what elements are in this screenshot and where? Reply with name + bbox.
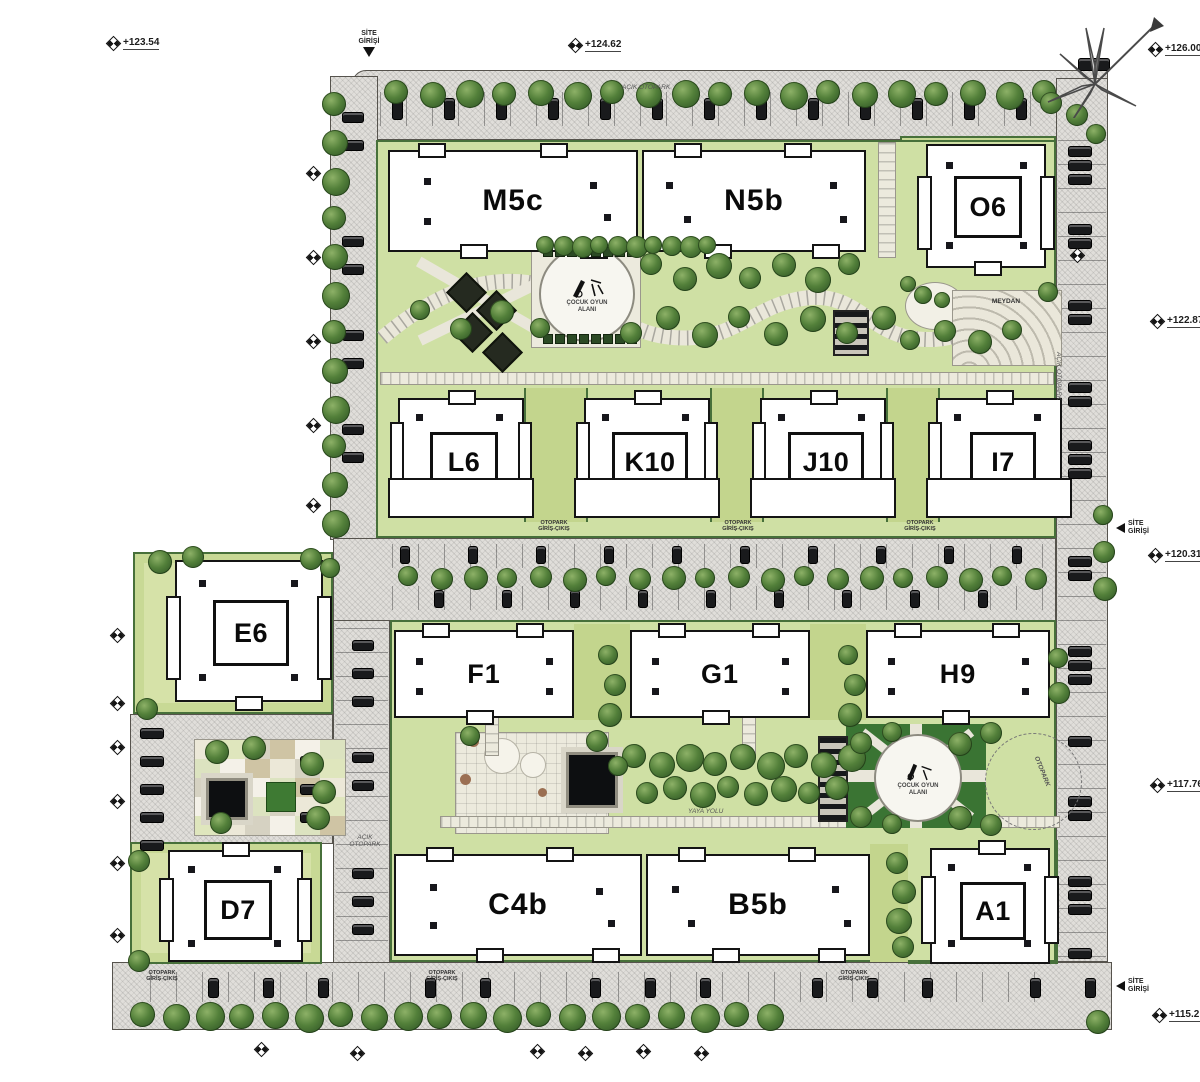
parking-gate-label: OTOPARK GİRİŞ-ÇIKIŞ xyxy=(716,520,760,533)
benchmark-icon xyxy=(306,418,322,434)
tree-icon xyxy=(850,732,872,754)
tree-icon xyxy=(322,396,350,424)
tree-icon xyxy=(625,1004,650,1029)
plaza-circle xyxy=(520,752,546,778)
plaza-dot xyxy=(538,788,547,797)
tree-icon xyxy=(838,645,858,665)
garden-square xyxy=(266,782,296,812)
building-K10-base xyxy=(574,478,720,518)
entrance-arrow-icon xyxy=(1116,981,1125,991)
car-icon xyxy=(1068,454,1092,465)
car-icon xyxy=(352,924,374,935)
tree-icon xyxy=(322,472,348,498)
building-core: O6 xyxy=(954,176,1022,238)
north-arrow-icon xyxy=(1040,6,1170,118)
elevation-marker: +115.21 xyxy=(1154,1010,1200,1022)
tree-icon xyxy=(306,806,330,830)
tree-icon xyxy=(460,1002,487,1029)
tree-icon xyxy=(980,814,1002,836)
tree-icon xyxy=(708,82,732,106)
elevation-marker: +123.54 xyxy=(108,38,159,50)
benchmark-icon xyxy=(106,36,122,52)
tree-icon xyxy=(852,82,878,108)
benchmark-icon xyxy=(110,628,126,644)
building-core: D7 xyxy=(204,880,272,940)
tree-icon xyxy=(882,814,902,834)
car-icon xyxy=(1030,978,1041,998)
tree-icon xyxy=(959,568,983,592)
tree-icon xyxy=(764,322,788,346)
entrance-arrow-icon xyxy=(1116,523,1125,533)
open-parking-label: AÇIK OTOPARK xyxy=(348,834,382,848)
car-icon xyxy=(808,98,819,120)
tree-icon xyxy=(691,1004,720,1033)
tree-icon xyxy=(1025,568,1047,590)
tree-icon xyxy=(728,306,750,328)
tree-icon xyxy=(690,782,716,808)
tree-icon xyxy=(934,320,956,342)
tree-icon xyxy=(493,1004,522,1033)
playground-equipment-icon xyxy=(567,274,607,300)
tree-icon xyxy=(182,546,204,568)
tree-icon xyxy=(914,286,932,304)
building-core: E6 xyxy=(213,600,289,666)
tree-icon xyxy=(205,740,229,764)
tree-icon xyxy=(460,726,480,746)
site-entrance-right: SİTE GİRİŞİ xyxy=(1116,520,1156,535)
car-icon xyxy=(536,546,546,564)
planter-icon xyxy=(555,334,565,344)
tree-icon xyxy=(427,1004,452,1029)
tree-icon xyxy=(322,320,346,344)
tree-icon xyxy=(771,776,797,802)
building-label: B5b xyxy=(648,856,868,954)
open-parking-label: AÇIK OTOPARK xyxy=(622,84,670,91)
car-icon xyxy=(208,978,219,998)
tree-icon xyxy=(528,80,554,106)
tree-icon xyxy=(640,253,662,275)
tree-icon xyxy=(836,322,858,344)
car-icon xyxy=(318,978,329,998)
tree-icon xyxy=(980,722,1002,744)
car-icon xyxy=(1068,948,1092,959)
car-icon xyxy=(706,590,716,608)
tree-icon xyxy=(816,80,840,104)
tree-icon xyxy=(210,812,232,834)
tree-icon xyxy=(328,1002,353,1027)
car-icon xyxy=(1068,556,1092,567)
tree-icon xyxy=(784,744,808,768)
building-B5b[interactable]: B5b xyxy=(646,854,870,956)
otopark-circle xyxy=(985,733,1082,830)
benchmark-icon xyxy=(1150,778,1166,794)
tree-icon xyxy=(312,780,336,804)
site-entrance-top: SİTE GİRİŞİ xyxy=(350,30,388,57)
tree-icon xyxy=(300,548,322,570)
tree-icon xyxy=(744,80,770,106)
benchmark-icon xyxy=(110,856,126,872)
tree-icon xyxy=(420,82,446,108)
tree-icon xyxy=(800,306,826,332)
tree-icon xyxy=(242,736,266,760)
building-C4b[interactable]: C4b xyxy=(394,854,642,956)
car-icon xyxy=(352,868,374,879)
building-label: H9 xyxy=(868,632,1048,716)
car-icon xyxy=(502,590,512,608)
tree-icon xyxy=(530,566,552,588)
tree-icon xyxy=(130,1002,155,1027)
tree-icon xyxy=(394,1002,423,1031)
car-icon xyxy=(1068,238,1092,249)
tree-icon xyxy=(992,566,1012,586)
benchmark-icon xyxy=(110,794,126,810)
planter-icon xyxy=(567,334,577,344)
tree-icon xyxy=(398,566,418,586)
benchmark-icon xyxy=(306,498,322,514)
entrance-label: SİTE GİRİŞİ xyxy=(1128,978,1156,993)
tree-icon xyxy=(559,1004,586,1031)
tree-icon xyxy=(673,267,697,291)
tree-icon xyxy=(672,80,700,108)
building-D7[interactable]: D7 xyxy=(168,850,303,962)
tree-icon xyxy=(1086,124,1106,144)
tree-icon xyxy=(698,236,716,254)
car-icon xyxy=(342,112,364,123)
benchmark-icon xyxy=(110,740,126,756)
tree-icon xyxy=(450,318,472,340)
tree-icon xyxy=(860,566,884,590)
tree-icon xyxy=(608,236,628,256)
tree-icon xyxy=(586,730,608,752)
car-icon xyxy=(812,978,823,998)
entrance-label: SİTE GİRİŞİ xyxy=(350,30,388,45)
tree-icon xyxy=(608,756,628,776)
playground-equipment-icon xyxy=(900,759,936,783)
car-icon xyxy=(740,546,750,564)
car-icon xyxy=(774,590,784,608)
elevation-marker: +120.31 xyxy=(1150,550,1200,562)
car-icon xyxy=(604,546,614,564)
parking-gate-label: OTOPARK GİRİŞ-ÇIKIŞ xyxy=(140,970,184,983)
car-icon xyxy=(352,752,374,763)
tree-icon xyxy=(996,82,1024,110)
car-icon xyxy=(352,696,374,707)
tree-icon xyxy=(526,1002,551,1027)
tree-icon xyxy=(772,253,796,277)
car-icon xyxy=(590,978,601,998)
car-icon xyxy=(352,896,374,907)
tree-icon xyxy=(882,722,902,742)
car-icon xyxy=(1068,396,1092,407)
car-icon xyxy=(1068,160,1092,171)
car-icon xyxy=(1068,570,1092,581)
tree-icon xyxy=(658,1002,685,1029)
benchmark-icon xyxy=(1152,1008,1168,1024)
car-icon xyxy=(1068,890,1092,901)
car-icon xyxy=(1068,904,1092,915)
car-icon xyxy=(910,590,920,608)
car-icon xyxy=(1085,978,1096,998)
car-icon xyxy=(140,728,164,739)
tree-icon xyxy=(322,358,348,384)
tree-icon xyxy=(872,306,896,330)
car-icon xyxy=(468,546,478,564)
tree-icon xyxy=(497,568,517,588)
car-icon xyxy=(1012,546,1022,564)
car-icon xyxy=(638,590,648,608)
car-icon xyxy=(342,264,364,275)
car-icon xyxy=(700,978,711,998)
parking-gate-label: OTOPARK GİRİŞ-ÇIKIŞ xyxy=(832,970,876,983)
tree-icon xyxy=(128,950,150,972)
tree-icon xyxy=(706,253,732,279)
tree-icon xyxy=(300,752,324,776)
benchmark-icon xyxy=(578,1046,594,1062)
car-icon xyxy=(1068,876,1092,887)
tree-icon xyxy=(554,236,574,256)
car-icon xyxy=(645,978,656,998)
entrance-arrow-icon xyxy=(363,47,375,57)
planter-icon xyxy=(579,334,589,344)
parking-gate-label: OTOPARK GİRİŞ-ÇIKIŞ xyxy=(420,970,464,983)
building-E6[interactable]: E6 xyxy=(175,560,323,702)
tree-icon xyxy=(811,752,837,778)
building-G1[interactable]: G1 xyxy=(630,630,810,718)
building-core: A1 xyxy=(960,882,1026,940)
tree-icon xyxy=(960,80,986,106)
car-icon xyxy=(342,236,364,247)
elevation-marker: +122.87 xyxy=(1152,316,1200,328)
tree-icon xyxy=(663,776,687,800)
building-label: C4b xyxy=(396,856,640,954)
car-icon xyxy=(1068,468,1092,479)
site-entrance-bottom: SİTE GİRİŞİ xyxy=(1116,978,1156,993)
car-icon xyxy=(434,590,444,608)
tree-icon xyxy=(744,782,768,806)
tree-icon xyxy=(262,1002,289,1029)
benchmark-icon xyxy=(306,334,322,350)
tree-icon xyxy=(676,744,704,772)
tree-icon xyxy=(1048,682,1070,704)
tree-icon xyxy=(629,568,651,590)
tree-icon xyxy=(196,1002,225,1031)
entrance-label: SİTE GİRİŞİ xyxy=(1128,520,1156,535)
tree-icon xyxy=(322,510,350,538)
car-icon xyxy=(1068,382,1092,393)
tree-icon xyxy=(536,236,554,254)
building-H9[interactable]: H9 xyxy=(866,630,1050,718)
car-icon xyxy=(140,756,164,767)
site-plan: ÇOCUK OYUN ALANI MEYDAN YAYA YOLU ÇOCUK … xyxy=(0,0,1200,1082)
benchmark-icon xyxy=(1148,548,1164,564)
car-icon xyxy=(140,784,164,795)
car-icon xyxy=(140,812,164,823)
tree-icon xyxy=(322,92,346,116)
tree-icon xyxy=(838,253,860,275)
building-J10-base xyxy=(750,478,896,518)
tree-icon xyxy=(604,674,626,696)
building-label: N5b xyxy=(644,152,864,250)
building-O6[interactable]: O6 xyxy=(926,144,1046,268)
car-icon xyxy=(922,978,933,998)
car-icon xyxy=(342,424,364,435)
tree-icon xyxy=(780,82,808,110)
benchmark-icon xyxy=(110,696,126,712)
tree-icon xyxy=(886,852,908,874)
tree-icon xyxy=(1093,577,1117,601)
plaza-dot xyxy=(460,774,471,785)
tree-icon xyxy=(456,80,484,108)
tree-icon xyxy=(703,752,727,776)
parking-bays xyxy=(392,586,1044,610)
tree-icon xyxy=(888,80,916,108)
tree-icon xyxy=(464,566,488,590)
elevation-marker: +117.76 xyxy=(1152,780,1200,792)
tree-icon xyxy=(295,1004,324,1033)
tree-icon xyxy=(900,330,920,350)
tree-icon xyxy=(844,674,866,696)
tree-icon xyxy=(893,568,913,588)
tree-icon xyxy=(600,80,624,104)
tree-icon xyxy=(662,236,682,256)
tree-icon xyxy=(805,267,831,293)
tree-icon xyxy=(649,752,675,778)
upper-walkway xyxy=(380,372,1054,385)
parking-gate-label: OTOPARK GİRİŞ-ÇIKIŞ xyxy=(898,520,942,533)
tree-icon xyxy=(598,645,618,665)
tree-icon xyxy=(825,776,849,800)
benchmark-icon xyxy=(694,1046,710,1062)
tree-icon xyxy=(620,322,642,344)
tree-icon xyxy=(656,306,680,330)
tree-icon xyxy=(431,568,453,590)
tree-icon xyxy=(322,434,346,458)
tree-icon xyxy=(850,806,872,828)
tree-icon xyxy=(229,1004,254,1029)
benchmark-icon xyxy=(110,928,126,944)
building-L6-base xyxy=(388,478,534,518)
building-F1[interactable]: F1 xyxy=(394,630,574,718)
tree-icon xyxy=(598,703,622,727)
car-icon xyxy=(1068,660,1092,671)
tree-icon xyxy=(322,282,350,310)
tree-icon xyxy=(794,566,814,586)
meydan-label: MEYDAN xyxy=(984,298,1028,305)
tree-icon xyxy=(322,130,348,156)
building-I7-base xyxy=(926,478,1072,518)
benchmark-icon xyxy=(306,166,322,182)
tree-icon xyxy=(410,300,430,320)
car-icon xyxy=(480,978,491,998)
car-icon xyxy=(352,640,374,651)
car-icon xyxy=(1068,146,1092,157)
car-icon xyxy=(1068,674,1092,685)
tree-icon xyxy=(163,1004,190,1031)
tree-icon xyxy=(322,244,348,270)
tree-icon xyxy=(717,776,739,798)
tree-icon xyxy=(1048,648,1068,668)
car-icon xyxy=(263,978,274,998)
car-icon xyxy=(352,668,374,679)
car-icon xyxy=(944,546,954,564)
tree-icon xyxy=(644,236,662,254)
tree-icon xyxy=(948,732,972,756)
tree-icon xyxy=(761,568,785,592)
car-icon xyxy=(1068,300,1092,311)
tree-icon xyxy=(798,782,820,804)
building-A1[interactable]: A1 xyxy=(930,848,1050,964)
tree-icon xyxy=(730,744,756,770)
tree-icon xyxy=(692,322,718,348)
tree-icon xyxy=(892,936,914,958)
tree-icon xyxy=(662,566,686,590)
tree-icon xyxy=(564,82,592,110)
tree-icon xyxy=(1038,282,1058,302)
car-icon xyxy=(1068,224,1092,235)
tree-icon xyxy=(739,267,761,289)
tree-icon xyxy=(886,908,912,934)
benchmark-icon xyxy=(306,250,322,266)
tree-icon xyxy=(492,82,516,106)
tree-icon xyxy=(900,276,916,292)
tree-icon xyxy=(590,236,608,254)
tree-icon xyxy=(490,300,514,324)
walkway-label: YAYA YOLU xyxy=(688,808,723,815)
car-icon xyxy=(1068,174,1092,185)
tree-icon xyxy=(361,1004,388,1031)
tree-icon xyxy=(1086,1010,1110,1034)
tree-icon xyxy=(968,330,992,354)
elevation-marker: +124.62 xyxy=(570,40,621,52)
car-icon xyxy=(808,546,818,564)
planter-icon xyxy=(603,334,613,344)
car-icon xyxy=(876,546,886,564)
playground-label: ÇOCUK OYUN ALANI xyxy=(897,783,939,796)
tree-icon xyxy=(948,806,972,830)
tree-icon xyxy=(596,566,616,586)
tree-icon xyxy=(724,1002,749,1027)
tree-icon xyxy=(926,566,948,588)
tree-icon xyxy=(1002,320,1022,340)
playground-label: ÇOCUK OYUN ALANI xyxy=(566,300,608,313)
car-icon xyxy=(672,546,682,564)
tree-icon xyxy=(322,206,346,230)
tree-icon xyxy=(148,550,172,574)
tree-icon xyxy=(636,782,658,804)
tree-icon xyxy=(1093,541,1115,563)
tree-icon xyxy=(592,1002,621,1031)
benchmark-icon xyxy=(636,1044,652,1060)
tree-icon xyxy=(563,568,587,592)
parking-gate-label: OTOPARK GİRİŞ-ÇIKIŞ xyxy=(532,520,576,533)
car-icon xyxy=(1068,646,1092,657)
tree-icon xyxy=(728,566,750,588)
path-connector xyxy=(878,142,896,258)
car-icon xyxy=(444,98,455,120)
benchmark-icon xyxy=(254,1042,270,1058)
tree-icon xyxy=(530,318,550,338)
tree-icon xyxy=(934,292,950,308)
tree-icon xyxy=(892,880,916,904)
benchmark-icon xyxy=(568,38,584,54)
car-icon xyxy=(1068,736,1092,747)
tree-icon xyxy=(695,568,715,588)
benchmark-icon xyxy=(1150,314,1166,330)
tree-icon xyxy=(924,82,948,106)
car-icon xyxy=(842,590,852,608)
tree-icon xyxy=(757,1004,784,1031)
tree-icon xyxy=(1093,505,1113,525)
